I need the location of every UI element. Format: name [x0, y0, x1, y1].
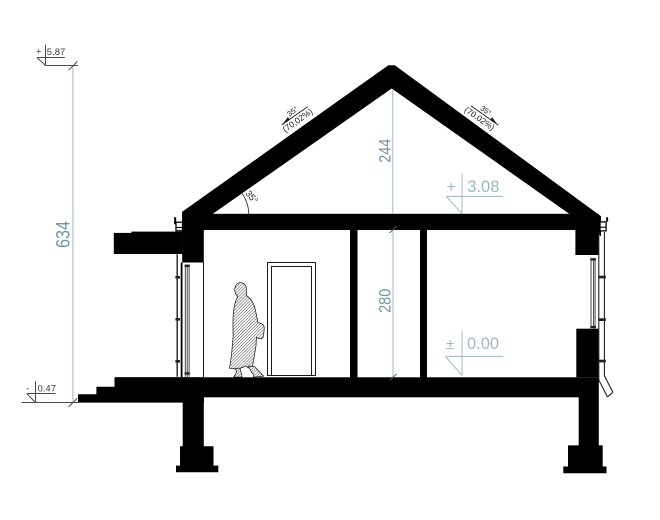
svg-text:-: - — [26, 384, 29, 395]
svg-text:+: + — [36, 46, 42, 57]
svg-text:634: 634 — [52, 221, 74, 248]
svg-text:+: + — [447, 179, 456, 196]
svg-text:0.47: 0.47 — [38, 384, 57, 395]
svg-text:5.87: 5.87 — [47, 47, 66, 58]
svg-text:3.08: 3.08 — [467, 178, 499, 196]
svg-text:0.00: 0.00 — [467, 335, 499, 353]
svg-text:244: 244 — [377, 138, 395, 162]
svg-text:±: ± — [446, 336, 454, 353]
svg-text:280: 280 — [377, 289, 395, 313]
